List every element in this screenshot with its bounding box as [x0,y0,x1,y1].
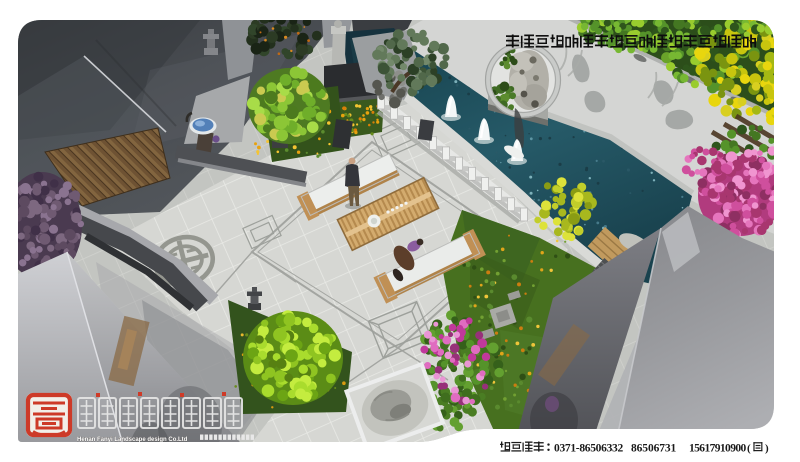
svg-text:0371-86506332: 0371-86506332 [554,443,623,455]
svg-text:(: ( [747,443,751,455]
svg-text:15617910900: 15617910900 [689,443,747,455]
svg-text:): ) [765,443,769,455]
svg-text:86506731: 86506731 [631,443,677,455]
